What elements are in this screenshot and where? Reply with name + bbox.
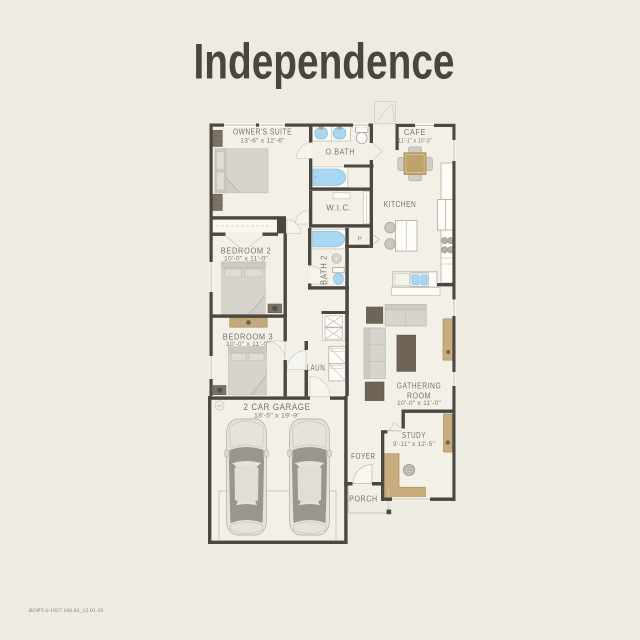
- svg-text:18'-5" x 19'-9": 18'-5" x 19'-9": [254, 412, 300, 419]
- svg-text:GATHERING: GATHERING: [397, 380, 442, 390]
- svg-text:LAUN.: LAUN.: [307, 362, 328, 372]
- svg-text:STUDY: STUDY: [402, 430, 426, 440]
- svg-text:W.I.C.: W.I.C.: [326, 202, 352, 212]
- svg-text:P: P: [358, 237, 362, 243]
- svg-text:2 CAR GARAGE: 2 CAR GARAGE: [244, 402, 311, 412]
- svg-text:CAFE: CAFE: [404, 127, 426, 137]
- svg-text:9'-11" x 12'-5": 9'-11" x 12'-5": [393, 441, 435, 448]
- svg-text:OWNER'S SUITE: OWNER'S SUITE: [233, 126, 292, 136]
- svg-text:KITCHEN: KITCHEN: [384, 199, 417, 209]
- svg-text:FOYER: FOYER: [351, 451, 376, 461]
- svg-text:11'-1" x 10'-3": 11'-1" x 10'-3": [398, 137, 432, 144]
- svg-text:O.BATH: O.BATH: [326, 146, 356, 156]
- svg-text:BEDROOM 2: BEDROOM 2: [221, 245, 272, 255]
- svg-text:10'-0" x 11'-0": 10'-0" x 11'-0": [224, 255, 268, 262]
- svg-text:PORCH: PORCH: [349, 494, 378, 504]
- svg-text:wh: wh: [217, 404, 222, 408]
- svg-text:10'-0" x 11'-0": 10'-0" x 11'-0": [397, 400, 441, 407]
- svg-text:BEDROOM 3: BEDROOM 3: [223, 331, 274, 341]
- svg-text:BATH 2: BATH 2: [319, 255, 329, 285]
- svg-text:13'-6" x 12'-6": 13'-6" x 12'-6": [240, 137, 285, 144]
